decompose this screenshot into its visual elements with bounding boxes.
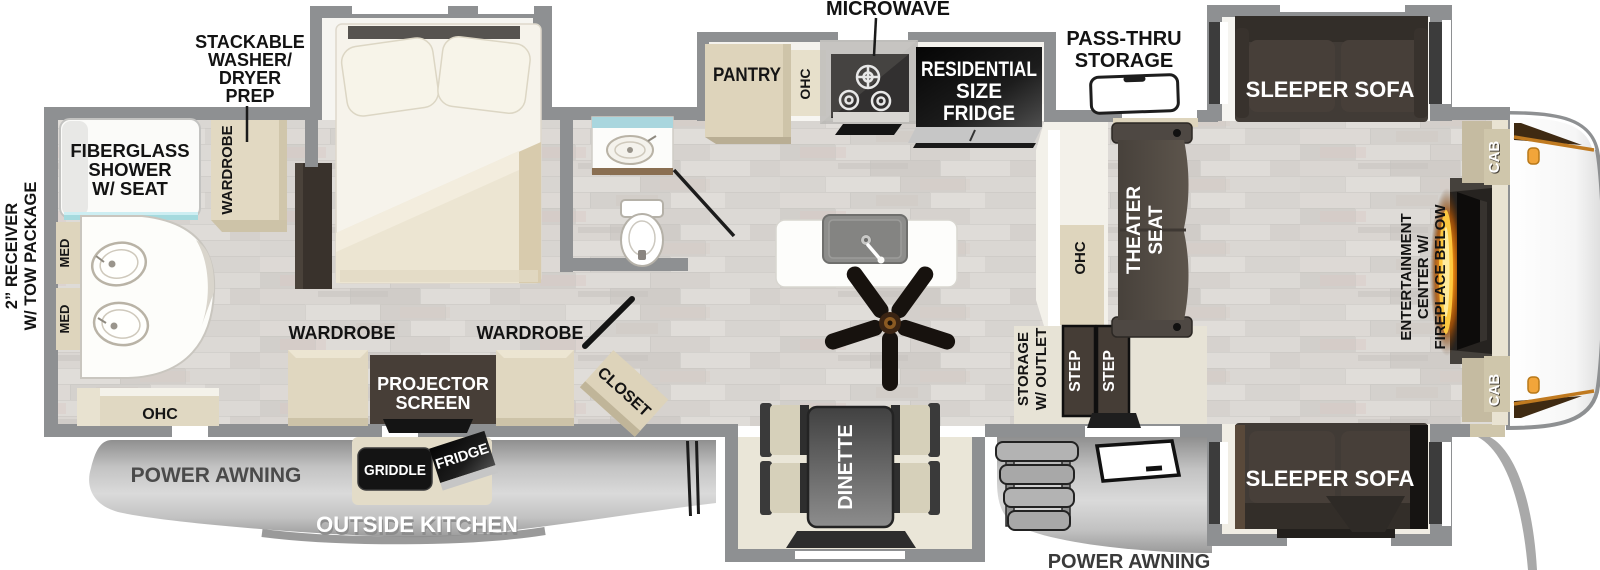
svg-text:WASHER/: WASHER/	[208, 50, 292, 70]
svg-text:W/ OUTLET: W/ OUTLET	[1033, 328, 1050, 411]
svg-text:DRYER: DRYER	[219, 68, 281, 88]
svg-text:WARDROBE: WARDROBE	[289, 323, 396, 343]
svg-text:SEAT: SEAT	[1146, 205, 1167, 255]
svg-text:PANTRY: PANTRY	[713, 64, 781, 86]
svg-text:CENTER W/: CENTER W/	[1415, 234, 1432, 319]
svg-text:CAB: CAB	[1486, 374, 1503, 407]
svg-text:STORAGE: STORAGE	[1015, 332, 1032, 406]
svg-text:W/ TOW PACKAGE: W/ TOW PACKAGE	[22, 182, 40, 331]
svg-text:SHOWER: SHOWER	[88, 159, 171, 180]
svg-text:SIZE: SIZE	[956, 80, 1002, 103]
svg-text:STEP: STEP	[1067, 350, 1084, 392]
svg-text:ENTERTAINMENT: ENTERTAINMENT	[1398, 213, 1415, 340]
svg-text:STACKABLE: STACKABLE	[195, 32, 305, 52]
svg-text:STEP: STEP	[1101, 350, 1118, 392]
svg-text:SCREEN: SCREEN	[395, 393, 470, 413]
svg-text:DINETTE: DINETTE	[835, 424, 857, 510]
svg-text:MICROWAVE: MICROWAVE	[826, 0, 950, 20]
svg-text:WARDROBE: WARDROBE	[219, 125, 236, 214]
svg-text:MED: MED	[57, 305, 72, 334]
svg-text:FIREPLACE BELOW: FIREPLACE BELOW	[1432, 204, 1449, 350]
svg-text:PASS-THRU: PASS-THRU	[1066, 28, 1181, 50]
svg-text:WARDROBE: WARDROBE	[477, 323, 584, 343]
svg-text:OHC: OHC	[142, 406, 178, 423]
svg-text:PROJECTOR: PROJECTOR	[377, 374, 489, 394]
svg-text:W/ SEAT: W/ SEAT	[92, 178, 168, 199]
svg-text:SLEEPER SOFA: SLEEPER SOFA	[1246, 77, 1415, 102]
svg-text:CAB: CAB	[1486, 141, 1503, 174]
svg-text:MED: MED	[57, 239, 72, 268]
svg-text:STORAGE: STORAGE	[1075, 50, 1174, 72]
svg-text:FIBERGLASS: FIBERGLASS	[70, 140, 189, 161]
svg-text:2” RECEIVER: 2” RECEIVER	[3, 203, 21, 309]
svg-text:FRIDGE: FRIDGE	[943, 102, 1015, 125]
svg-text:OUTSIDE KITCHEN: OUTSIDE KITCHEN	[316, 512, 518, 537]
svg-text:POWER AWNING: POWER AWNING	[131, 464, 302, 487]
svg-text:OHC: OHC	[797, 68, 813, 99]
svg-text:THEATER: THEATER	[1124, 186, 1145, 275]
svg-text:SLEEPER SOFA: SLEEPER SOFA	[1246, 466, 1415, 491]
svg-text:RESIDENTIAL: RESIDENTIAL	[921, 58, 1037, 81]
svg-text:GRIDDLE: GRIDDLE	[364, 462, 426, 479]
svg-text:POWER AWNING: POWER AWNING	[1048, 551, 1211, 570]
svg-text:PREP: PREP	[225, 86, 274, 106]
svg-text:OHC: OHC	[1072, 241, 1089, 275]
